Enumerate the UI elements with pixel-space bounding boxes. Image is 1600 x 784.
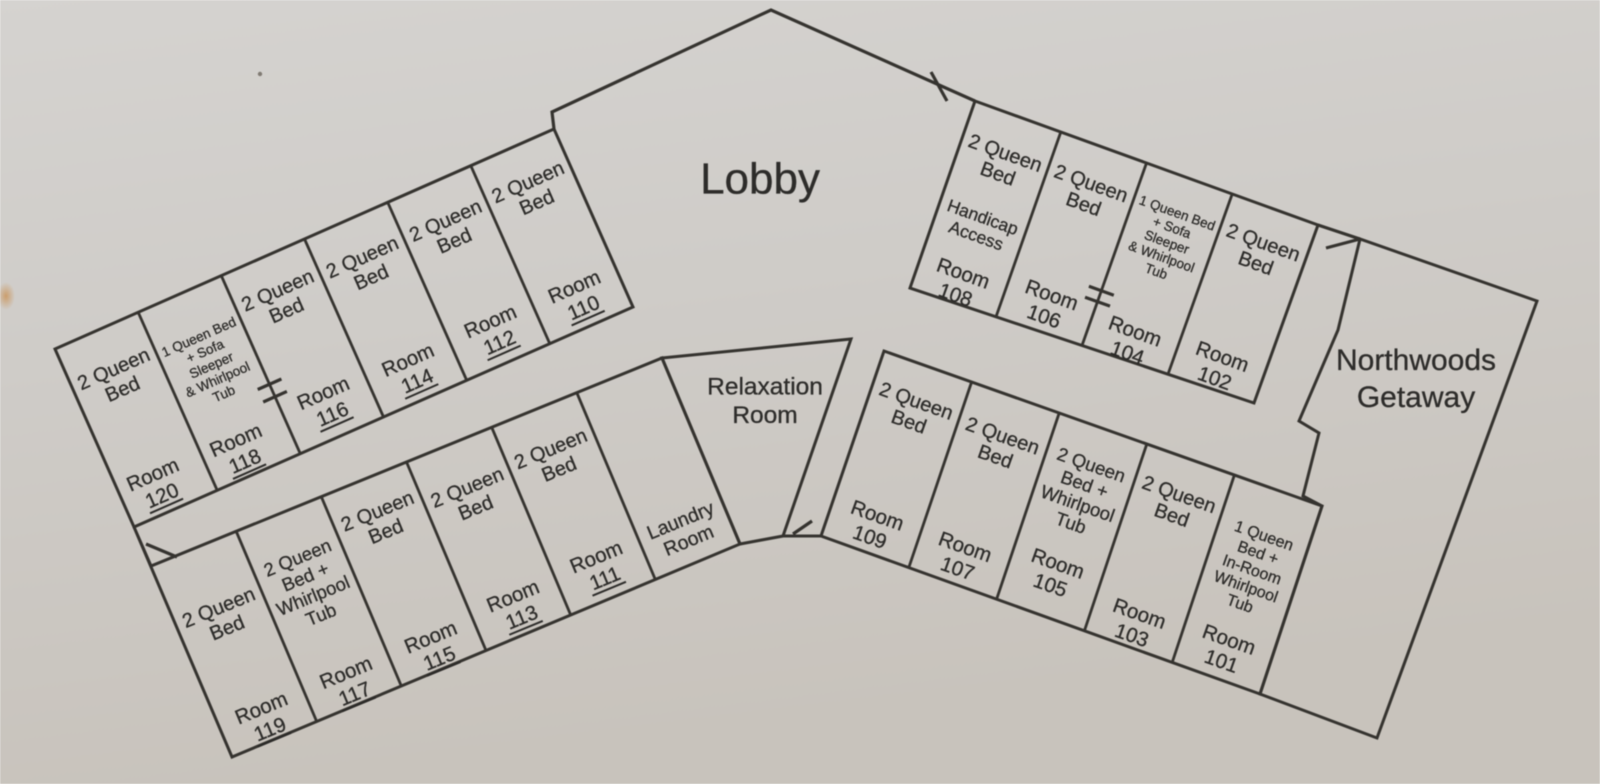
svg-text:Northwoods: Northwoods bbox=[1336, 344, 1496, 377]
svg-text:Room: Room bbox=[732, 402, 797, 429]
svg-text:Lobby: Lobby bbox=[700, 154, 820, 203]
svg-text:Relaxation: Relaxation bbox=[707, 373, 823, 400]
svg-text:Getaway: Getaway bbox=[1357, 381, 1475, 414]
